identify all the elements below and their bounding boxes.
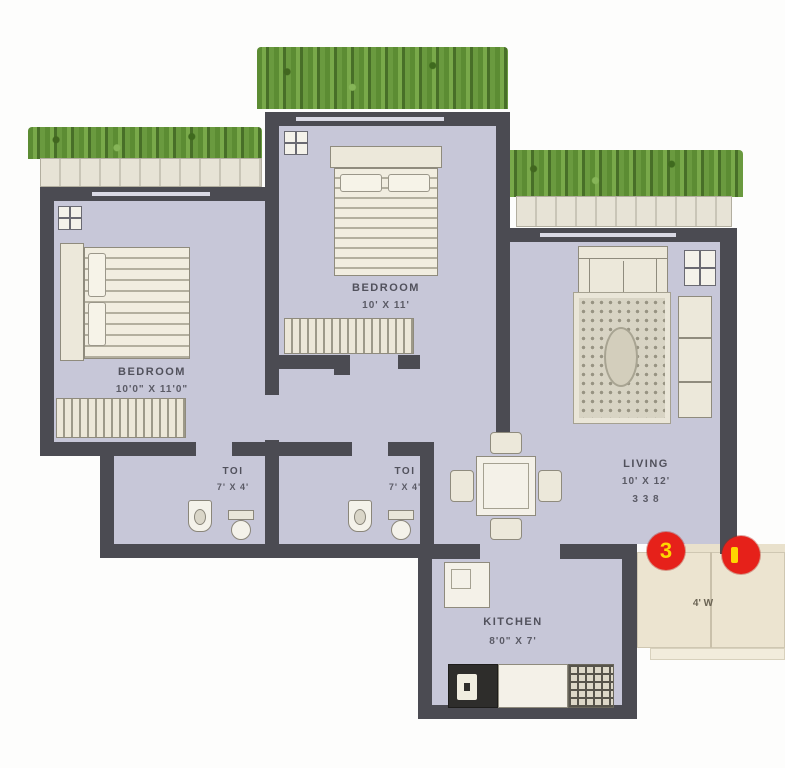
planter-box: [40, 158, 262, 187]
room-label-bedroom2: BEDROOM: [352, 282, 420, 294]
toilet-wc: [388, 510, 414, 540]
dining-chair: [538, 470, 562, 502]
wall: [622, 544, 637, 719]
door-opening: [480, 544, 560, 559]
planter-shrubs: [28, 127, 262, 159]
rug: [574, 293, 670, 423]
stove: [448, 664, 498, 708]
marker-number-sliver: [731, 547, 738, 563]
wardrobe: [56, 398, 186, 438]
window-glass: [296, 117, 444, 121]
wc-tank: [228, 510, 254, 520]
wall: [720, 228, 737, 554]
pillow: [340, 174, 382, 192]
room-label-kitchen: KITCHEN: [483, 616, 542, 628]
wc-bowl: [391, 520, 411, 540]
wall: [100, 442, 114, 558]
kitchen-sink: [568, 664, 614, 708]
wardrobe: [284, 318, 414, 354]
wall: [496, 112, 510, 450]
bed-headboard: [60, 243, 84, 361]
door-opening: [350, 355, 398, 369]
floor-plan: BEDROOM 10'0" X 11'0" BEDROOM 10' X 11' …: [0, 0, 785, 768]
sofa-back: [579, 247, 667, 259]
marker-3[interactable]: 3: [647, 532, 685, 570]
window-glass: [540, 233, 676, 237]
kitchen-counter: [498, 664, 568, 708]
washbasin-bowl: [194, 509, 206, 525]
wall: [265, 112, 279, 395]
room-label-toilet1: TOI: [223, 466, 244, 477]
planter-box: [516, 196, 732, 227]
dining-chair: [450, 470, 474, 502]
window-icon: [58, 206, 82, 230]
wall: [40, 187, 54, 456]
wall: [100, 544, 434, 558]
tv-unit: [678, 296, 712, 418]
wc-tank: [388, 510, 414, 520]
wall: [418, 544, 432, 719]
stove-knob: [464, 683, 470, 691]
balcony-dims: 4' W: [693, 598, 713, 609]
tv-unit-shelf-line: [679, 381, 711, 383]
window-glass: [92, 192, 210, 196]
dining-chair: [490, 432, 522, 454]
dining-table: [476, 456, 536, 516]
pillow: [88, 302, 106, 346]
stove-burner: [457, 674, 477, 700]
toilet-wc: [228, 510, 254, 540]
dining-table-inner: [483, 463, 529, 509]
room-dims-kitchen: 8'0" X 7': [489, 636, 536, 647]
door-opening: [265, 395, 279, 442]
tv-unit-shelf-line: [679, 337, 711, 339]
door-opening: [196, 442, 232, 456]
wall: [232, 442, 352, 456]
door-jamb: [334, 355, 350, 375]
washbasin-bowl: [354, 509, 366, 525]
wall: [420, 442, 434, 558]
kitchen-shelf: [444, 562, 490, 608]
room-dims2-living: 3 3 8: [632, 494, 659, 505]
room-dims-toilet1: 7' X 4': [217, 482, 249, 492]
marker-unlabeled[interactable]: [722, 536, 760, 574]
balcony-step: [650, 648, 785, 660]
pillow: [388, 174, 430, 192]
wall: [560, 544, 630, 559]
wall: [40, 442, 196, 456]
pillow: [88, 253, 106, 297]
room-label-living: LIVING: [623, 458, 669, 470]
planter-shrubs: [257, 47, 508, 109]
window-icon: [284, 131, 308, 155]
room-label-bedroom1: BEDROOM: [118, 366, 186, 378]
door-opening: [352, 442, 388, 456]
rug-center-medallion: [604, 327, 638, 387]
window-icon: [684, 250, 716, 286]
planter-shrubs: [505, 150, 743, 197]
room-dims-toilet2: 7' X 4': [389, 482, 421, 492]
kitchen-shelf-inner: [451, 569, 471, 589]
dining-chair: [490, 518, 522, 540]
wall: [398, 355, 420, 369]
room-dims-bedroom2: 10' X 11': [362, 300, 410, 311]
room-label-toilet2: TOI: [395, 466, 416, 477]
wc-bowl: [231, 520, 251, 540]
washbasin: [188, 500, 212, 532]
room-dims-bedroom1: 10'0" X 11'0": [116, 384, 188, 395]
washbasin: [348, 500, 372, 532]
marker-3-number: 3: [660, 540, 672, 562]
bed-headboard: [330, 146, 442, 168]
wall: [265, 440, 279, 558]
room-dims-living: 10' X 12': [622, 476, 670, 487]
